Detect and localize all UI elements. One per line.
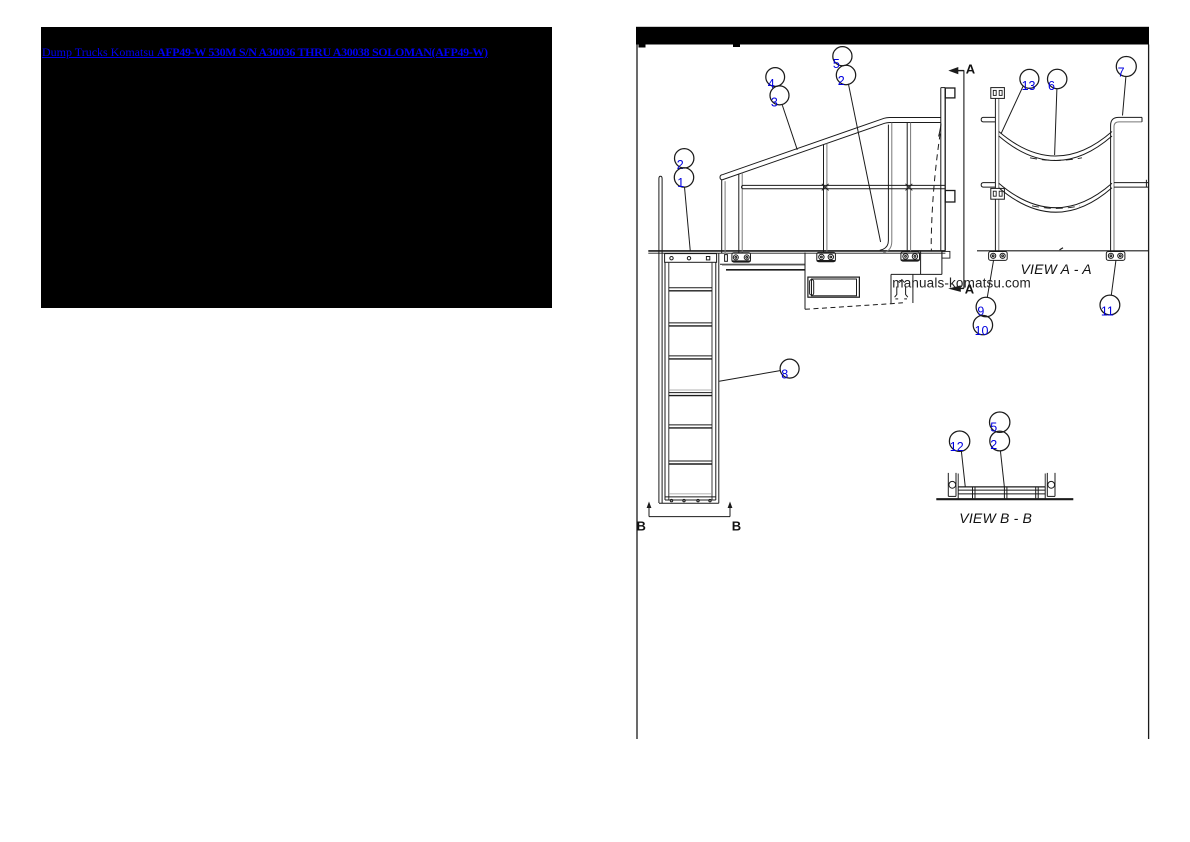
svg-text:2: 2 <box>990 438 997 452</box>
svg-text:1: 1 <box>677 176 684 190</box>
svg-text:11: 11 <box>1101 305 1114 319</box>
svg-text:VIEW A - A: VIEW A - A <box>1021 261 1092 277</box>
svg-text:7: 7 <box>1118 66 1125 80</box>
svg-text:6: 6 <box>1048 79 1055 93</box>
svg-text:A: A <box>966 61 976 76</box>
svg-text:B: B <box>637 519 646 534</box>
svg-text:8: 8 <box>781 368 788 382</box>
svg-text:12: 12 <box>950 440 964 454</box>
svg-text:VIEW B - B: VIEW B - B <box>959 510 1032 526</box>
svg-text:B: B <box>732 519 741 534</box>
svg-text:manuals-komatsu.com: manuals-komatsu.com <box>892 276 1031 291</box>
svg-text:13: 13 <box>1022 79 1036 93</box>
svg-text:4: 4 <box>768 77 775 91</box>
svg-text:10: 10 <box>975 324 989 338</box>
svg-text:3: 3 <box>771 95 778 109</box>
svg-text:2: 2 <box>838 74 845 88</box>
